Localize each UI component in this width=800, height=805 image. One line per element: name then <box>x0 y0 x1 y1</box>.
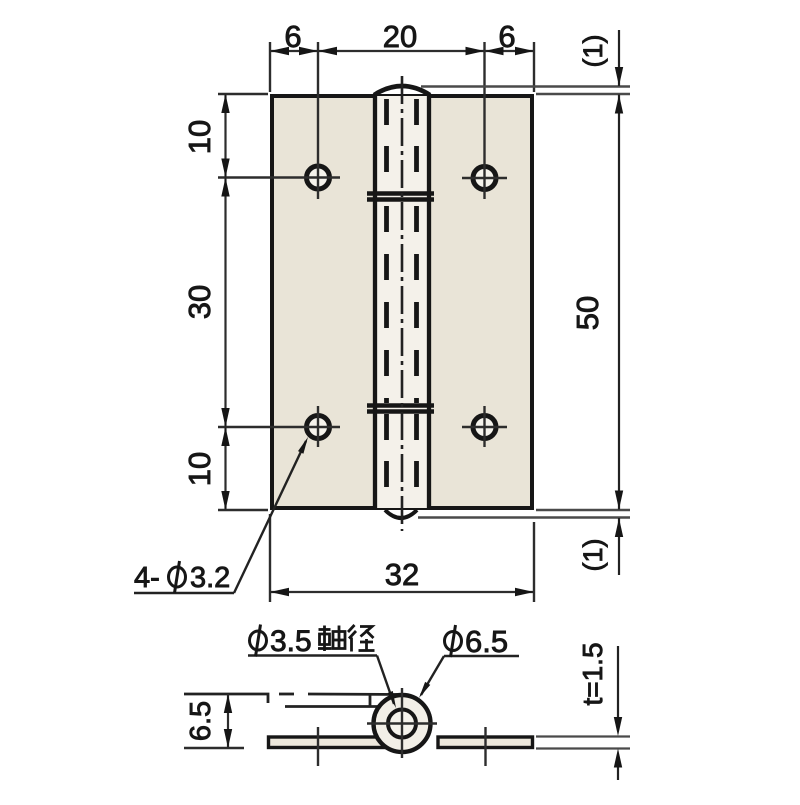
svg-text:4-: 4- <box>134 562 160 594</box>
svg-text:10: 10 <box>182 452 217 486</box>
svg-text:20: 20 <box>383 19 417 54</box>
svg-text:t=1.5: t=1.5 <box>577 642 608 705</box>
svg-text:32: 32 <box>385 557 419 592</box>
svg-text:6: 6 <box>284 19 301 54</box>
svg-text:6: 6 <box>498 19 515 54</box>
svg-text:3.5: 3.5 <box>270 625 312 658</box>
svg-text:6.5: 6.5 <box>185 701 217 741</box>
svg-text:30: 30 <box>182 285 217 319</box>
svg-text:(1): (1) <box>578 35 608 68</box>
svg-text:(1): (1) <box>578 539 608 572</box>
svg-text:6.5: 6.5 <box>465 624 508 659</box>
svg-text:50: 50 <box>570 296 605 330</box>
svg-text:3.2: 3.2 <box>190 562 230 594</box>
svg-text:10: 10 <box>182 120 217 154</box>
